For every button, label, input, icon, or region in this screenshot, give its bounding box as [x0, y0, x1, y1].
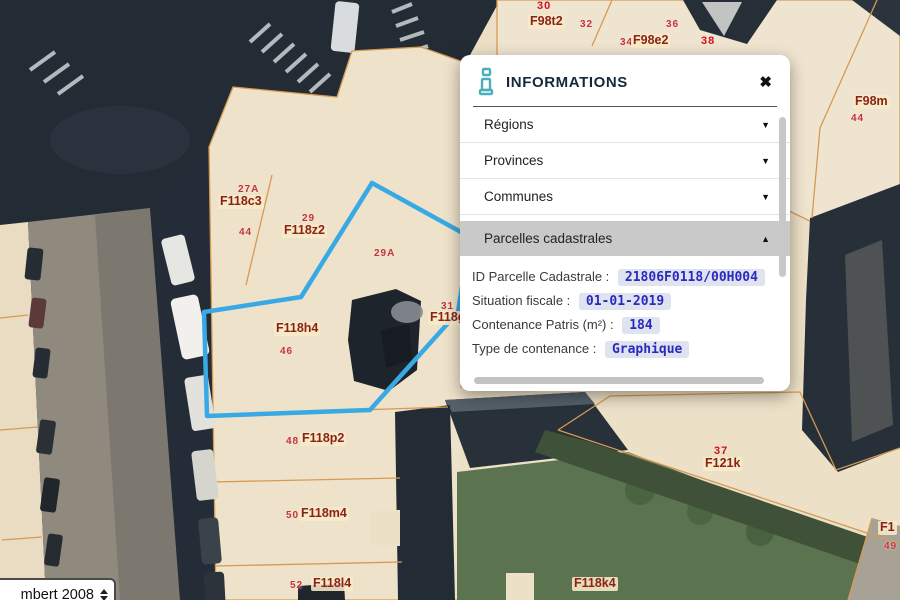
horizontal-scrollbar[interactable] [474, 377, 764, 384]
select-arrows-icon [100, 589, 108, 600]
informations-panel: INFORMATIONS ✖ Régions ▼ Provinces ▼ Com… [460, 55, 790, 391]
detail-row-parcel-id: ID Parcelle Cadastrale : 21806F0118/00H0… [472, 269, 778, 285]
detail-row-type-contenance: Type de contenance : Graphique [472, 341, 778, 357]
section-label: Communes [484, 189, 553, 204]
detail-row-situation-fiscale: Situation fiscale : 01-01-2019 [472, 293, 778, 309]
close-icon[interactable]: ✖ [757, 73, 774, 91]
building-column [395, 405, 455, 600]
chevron-down-icon: ▼ [761, 120, 770, 130]
detail-value: Graphique [605, 341, 689, 358]
section-label: Régions [484, 117, 534, 132]
section-label: Provinces [484, 153, 543, 168]
accordion-section-regions[interactable]: Régions ▼ [460, 107, 790, 143]
parcel-details: ID Parcelle Cadastrale : 21806F0118/00H0… [460, 256, 790, 357]
detail-label: Type de contenance : [472, 341, 596, 356]
detail-label: Situation fiscale : [472, 293, 570, 308]
section-label: Parcelles cadastrales [484, 231, 612, 246]
chevron-down-icon: ▼ [761, 192, 770, 202]
detail-value: 21806F0118/00H004 [618, 269, 765, 286]
detail-row-contenance: Contenance Patris (m²) : 184 [472, 317, 778, 333]
panel-header: INFORMATIONS ✖ [460, 55, 790, 106]
projection-select[interactable]: mbert 2008 [0, 578, 116, 600]
accordion: Régions ▼ Provinces ▼ Communes ▼ Parcell… [460, 107, 790, 256]
detail-value: 184 [622, 317, 659, 334]
projection-select-value: mbert 2008 [0, 587, 94, 600]
chevron-up-icon: ▲ [761, 234, 770, 244]
detail-value: 01-01-2019 [579, 293, 671, 310]
accordion-section-communes[interactable]: Communes ▼ [460, 179, 790, 215]
accordion-section-parcelles-cadastrales[interactable]: Parcelles cadastrales ▲ [460, 221, 790, 256]
accordion-section-provinces[interactable]: Provinces ▼ [460, 143, 790, 179]
panel-title: INFORMATIONS [506, 74, 628, 91]
info-icon [476, 67, 496, 97]
vertical-scrollbar[interactable] [779, 117, 786, 277]
detail-label: Contenance Patris (m²) : [472, 317, 614, 332]
detail-label: ID Parcelle Cadastrale : [472, 269, 609, 284]
chevron-down-icon: ▼ [761, 156, 770, 166]
